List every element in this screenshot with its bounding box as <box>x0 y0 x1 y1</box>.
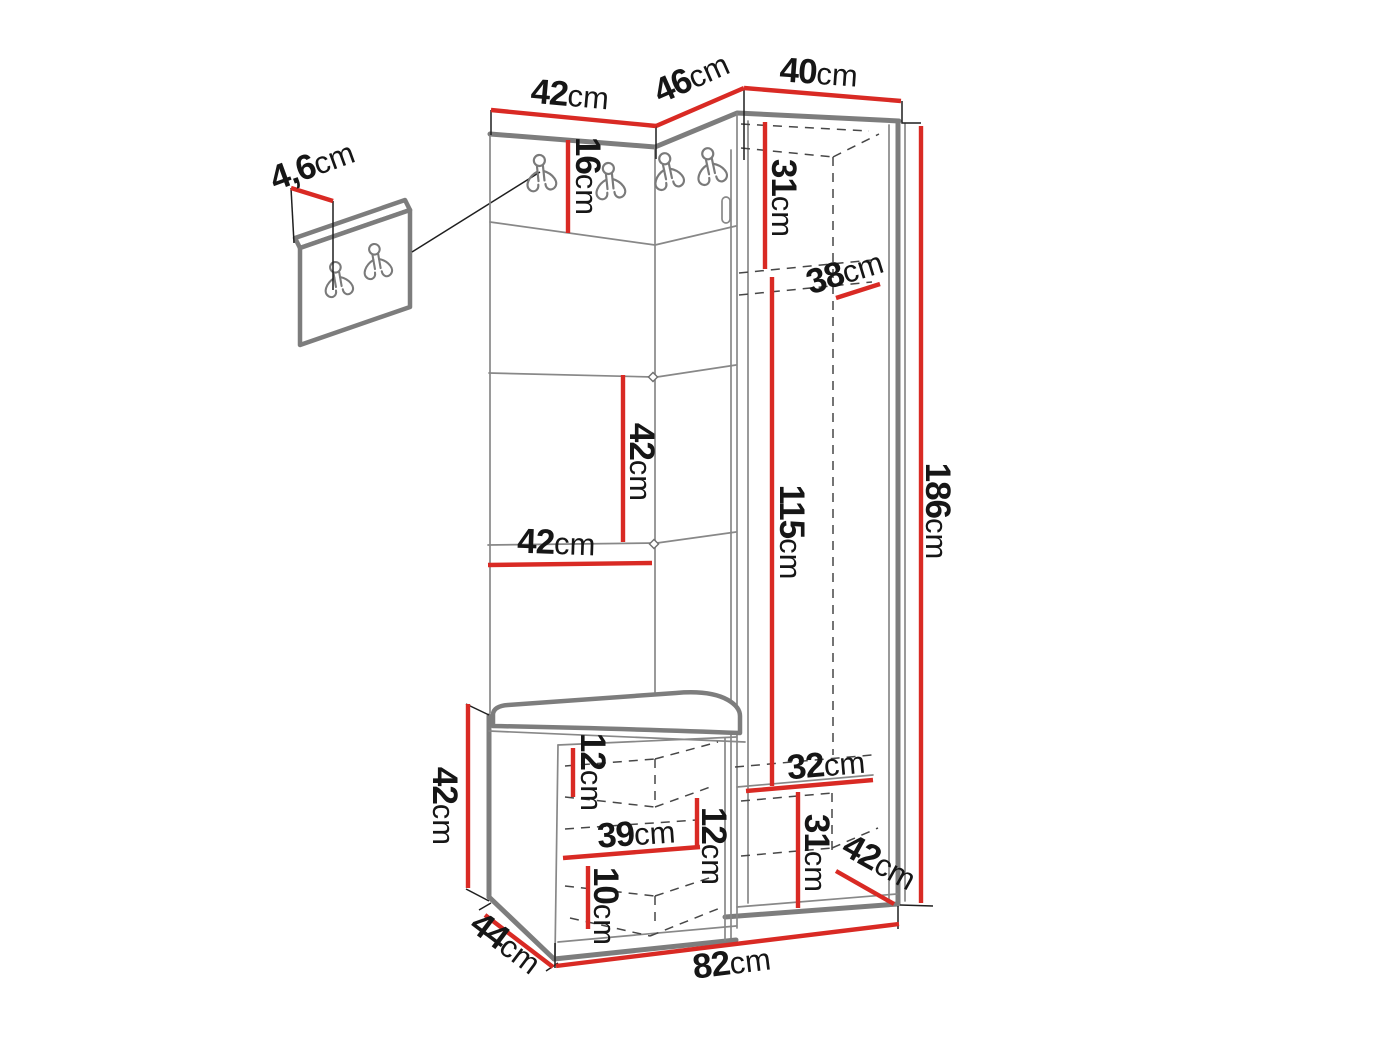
bench-cushion <box>493 692 740 733</box>
dim-label-cabinet-top-width: 40cm <box>778 50 859 94</box>
dim-label-cabinet-bottom-width: 32cm <box>785 742 866 788</box>
dimension-labels: 42cm 46cm 40cm 16cm 31cm 38cm 115cm 42cm… <box>265 44 957 987</box>
dim-label-cabinet-upper-space: 31cm <box>764 159 803 237</box>
furniture-dimension-diagram: 42cm 46cm 40cm 16cm 31cm 38cm 115cm 42cm… <box>0 0 1384 1038</box>
dim-label-bottom-total-width: 82cm <box>690 938 772 986</box>
coat-hooks <box>524 145 728 199</box>
upholstery-button <box>649 539 658 548</box>
diagram-canvas: 42cm 46cm 40cm 16cm 31cm 38cm 115cm 42cm… <box>0 0 1384 1038</box>
door-handle <box>722 197 730 223</box>
dim-label-cabinet-bottom-depth: 42cm <box>836 826 923 898</box>
dim-label-bench-bottom-inset: 10cm <box>586 867 625 945</box>
dim-label-bench-inner-width: 39cm <box>596 811 677 855</box>
dim-label-panel-width: 42cm <box>517 522 597 564</box>
upholstery-button <box>648 372 657 381</box>
detail-pointer-line <box>412 172 540 252</box>
dim-label-corner-top-width: 46cm <box>648 44 735 111</box>
dim-label-top-panel-width: 42cm <box>529 72 610 118</box>
dim-label-cabinet-bottom-height: 31cm <box>797 814 836 892</box>
coat-hook-icon <box>693 145 729 186</box>
dim-label-bench-top-inset: 12cm <box>573 733 612 811</box>
dim-label-panel-height: 42cm <box>622 423 661 501</box>
dim-label-bench-shelf-spacing: 12cm <box>694 807 733 885</box>
coat-hook-icon <box>524 153 556 191</box>
dim-label-hook-panel-thickness: 4,6cm <box>265 132 360 198</box>
dim-label-hanging-space-height: 115cm <box>772 485 811 580</box>
dim-label-bench-height: 42cm <box>425 767 464 845</box>
dim-label-total-height: 186cm <box>918 463 957 560</box>
dim-label-hook-strip-height: 16cm <box>568 137 607 215</box>
dim-line-panel-width <box>488 563 652 565</box>
